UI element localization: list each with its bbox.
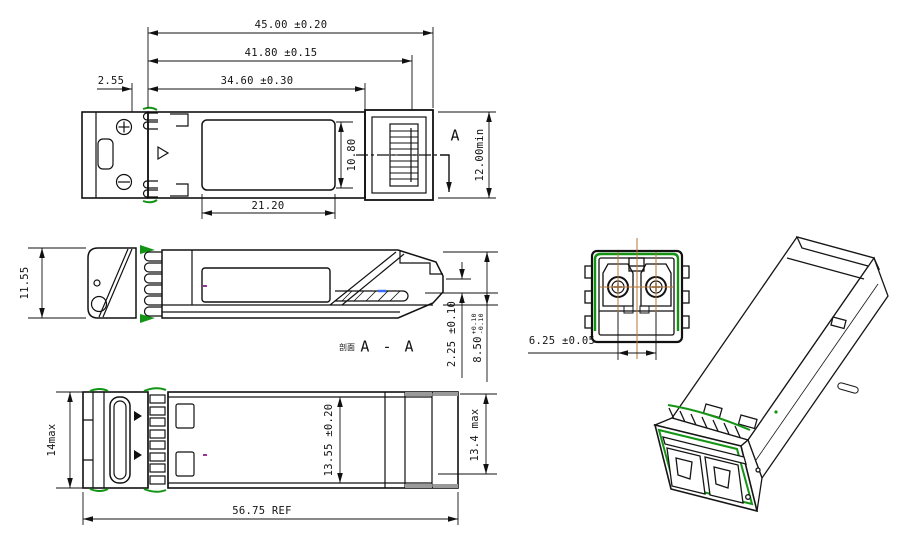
bottom-view-drawing [83, 388, 458, 492]
dim-port-pitch: 6.25 ±0.05 [529, 336, 595, 347]
dim-overall-length: 45.00 ±0.20 [255, 20, 328, 31]
section-marker: A [450, 129, 461, 144]
drawing-linework [0, 0, 910, 547]
section-label-prefix: 剖面 [339, 344, 355, 352]
housing-outline [162, 250, 443, 318]
dim-bezel-offset: 2.55 [98, 76, 125, 87]
dim-body-length: 34.60 ±0.30 [221, 76, 294, 87]
dim-body-width: 13.55 ±0.20 [324, 404, 335, 477]
dim-body-height: 8.50+0.10-0.10 [471, 313, 485, 363]
engineering-drawing-canvas: 45.00 ±0.20 41.80 ±0.15 34.60 ±0.30 2.55… [0, 0, 910, 547]
dim-label-height: 10.80 [347, 138, 358, 171]
bail-latch [88, 248, 136, 318]
dim-rear-width: 13.4 max [470, 409, 481, 462]
dim-body-height-tol-lower: -0.10 [478, 313, 485, 334]
top-view-drawing [82, 108, 449, 203]
dim-front-width: 14max [47, 423, 58, 456]
dim-pcb-offset: 2.25 ±0.10 [447, 301, 458, 367]
phillips-screw-icon [117, 120, 132, 135]
lc-slot [110, 397, 130, 483]
dim-pad-length: 41.80 ±0.15 [245, 48, 318, 59]
dim-label-width: 21.20 [251, 201, 284, 212]
dimension-lines [28, 27, 656, 525]
isometric-view-drawing [655, 237, 888, 511]
dim-min-height: 12.00min [475, 129, 486, 182]
side-view-drawing [88, 245, 443, 323]
emi-fingers [145, 252, 163, 316]
dim-overall-length-ref: 56.75 REF [232, 506, 292, 517]
slotted-screw-icon [117, 175, 132, 190]
centerlines [600, 238, 673, 359]
label-area [202, 120, 335, 190]
housing-outline [168, 392, 458, 488]
dim-body-height-value: 8.50 [473, 336, 484, 363]
orientation-triangle [158, 147, 168, 159]
dim-side-height: 11.55 [20, 266, 31, 299]
front-view-drawing [585, 238, 689, 359]
emi-fingers [144, 113, 159, 197]
section-label: A - A [360, 340, 415, 355]
